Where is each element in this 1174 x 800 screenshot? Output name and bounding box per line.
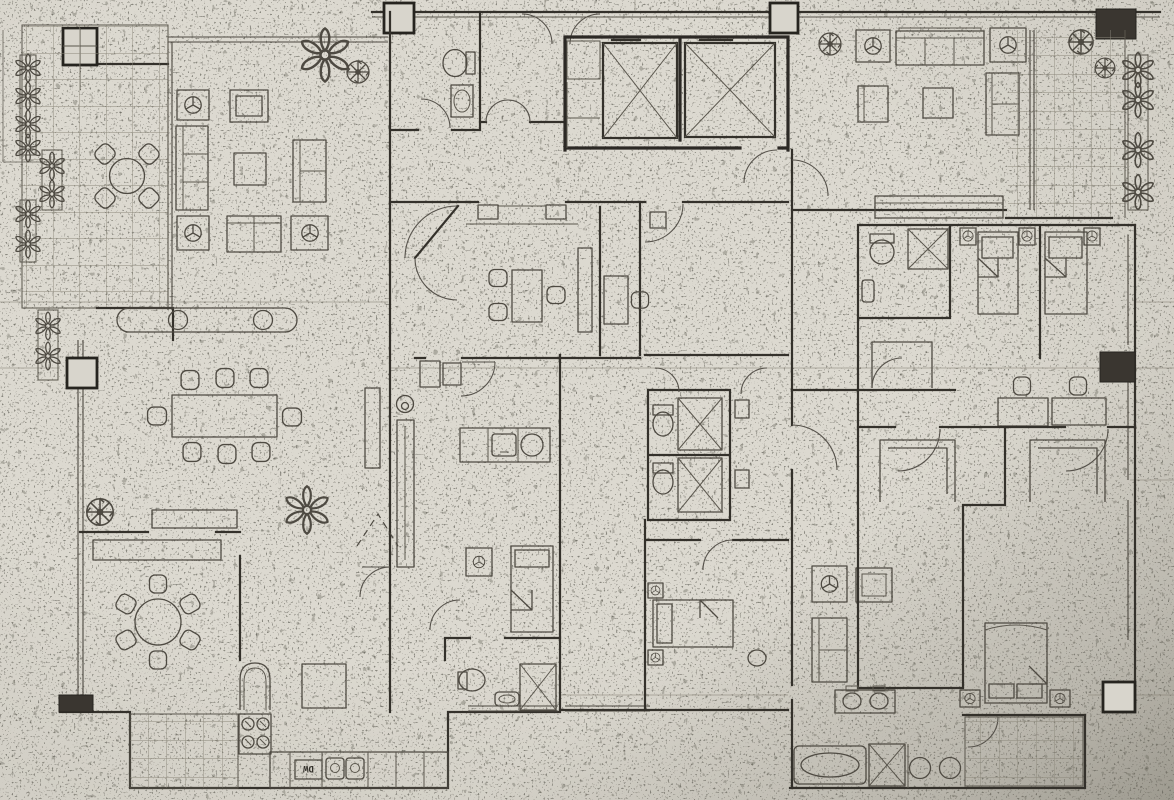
column <box>67 358 97 388</box>
floor-plan-drawing: DW <box>0 0 1174 800</box>
pinwheel-plant <box>347 61 369 83</box>
floor-plan-photo: DW <box>0 0 1174 800</box>
pinwheel-plant <box>87 499 113 525</box>
column <box>59 695 93 712</box>
pinwheel-plant <box>819 33 841 55</box>
balcony-tile-grid <box>22 25 168 308</box>
balcony-tile-grid <box>965 717 1083 786</box>
kitchen-floor-tiles <box>130 714 238 788</box>
column <box>1100 352 1135 382</box>
dishwasher-label: DW <box>303 763 314 773</box>
column <box>1103 682 1135 712</box>
pinwheel-plant <box>1095 58 1115 78</box>
balcony-bottom-right <box>965 717 1083 786</box>
column <box>384 3 414 33</box>
pinwheel-plant <box>1069 30 1093 54</box>
column <box>770 3 798 33</box>
